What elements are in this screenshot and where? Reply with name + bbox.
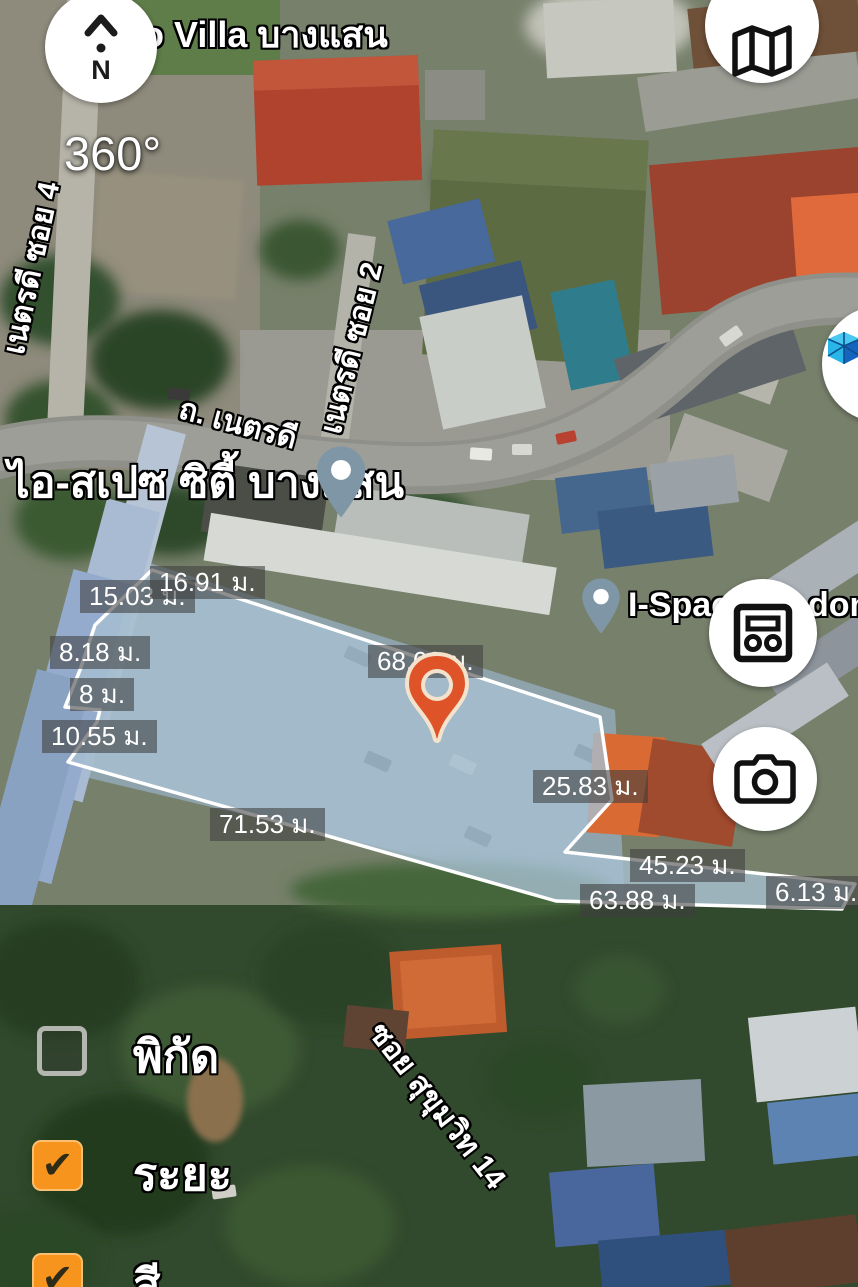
distance-checkbox-checked[interactable]: ✔ <box>32 1140 83 1191</box>
map-canvas[interactable]: เนตรดี ซอย 4 เนตรดี ซอย 2 ถ. เนตรดี ซอย … <box>0 0 858 1287</box>
measurement-label: 6.13 ม. <box>766 876 858 909</box>
svg-text:N: N <box>91 55 111 83</box>
coordinates-label: พิกัด <box>133 1020 219 1092</box>
menu-row-coordinates[interactable]: พิกัด <box>25 1012 255 1092</box>
distance-label: ระยะ <box>133 1138 232 1210</box>
measure-display-panel-icon <box>731 601 795 665</box>
selected-location-pin[interactable] <box>399 648 475 748</box>
measurement-label: 16.91 ม. <box>150 566 265 599</box>
measurement-label: 63.88 ม. <box>580 884 695 917</box>
ispace-condo-pin-icon[interactable] <box>580 576 622 636</box>
north-compass-icon: N <box>74 11 128 83</box>
folded-map-icon <box>731 25 793 79</box>
poi-label-villa[interactable]: o Villa บางแสน <box>142 6 388 63</box>
measurement-label: 45.23 ม. <box>630 849 745 882</box>
color-label: สี <box>133 1249 160 1287</box>
measurement-label: 8 ม. <box>70 678 134 711</box>
check-icon: ✔ <box>42 1256 74 1287</box>
coordinates-checkbox-unchecked[interactable] <box>37 1026 87 1076</box>
ispace-city-pin-icon[interactable] <box>314 443 368 521</box>
camera-button[interactable] <box>713 727 817 831</box>
color-checkbox-checked[interactable]: ✔ <box>32 1253 83 1287</box>
camera-icon <box>734 754 796 804</box>
measurement-label: 71.53 ม. <box>210 808 325 841</box>
measurement-display-button[interactable] <box>709 579 817 687</box>
measurement-label: 25.83 ม. <box>533 770 648 803</box>
check-icon: ✔ <box>42 1143 74 1188</box>
menu-row-color[interactable]: ✔ สี <box>25 1241 255 1287</box>
view-360-button[interactable]: 360° <box>64 126 161 181</box>
menu-row-distance[interactable]: ✔ ระยะ <box>25 1128 255 1208</box>
3d-cube-icon[interactable] <box>826 330 858 366</box>
poi-label-ispace-frag-right[interactable]: dom <box>808 586 858 625</box>
measurement-label: 10.55 ม. <box>42 720 157 753</box>
measurement-label: 8.18 ม. <box>50 636 150 669</box>
